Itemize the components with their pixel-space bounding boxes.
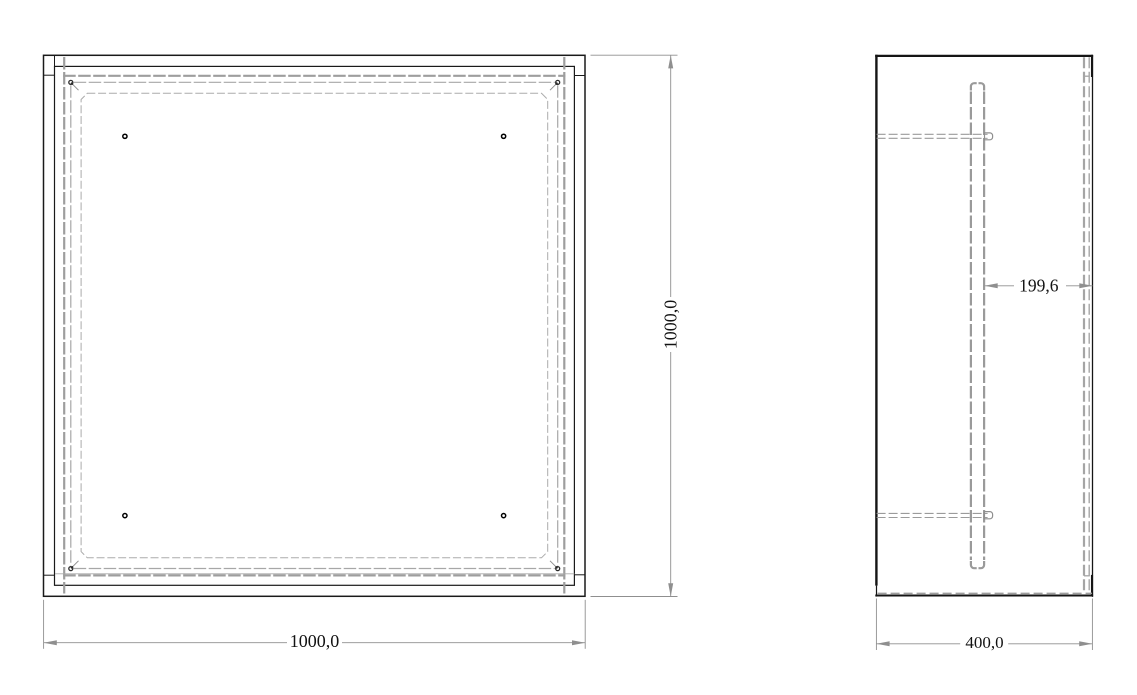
svg-text:400,0: 400,0 <box>965 633 1003 652</box>
svg-text:199,6: 199,6 <box>1019 275 1059 295</box>
svg-text:1000,0: 1000,0 <box>290 631 340 651</box>
svg-text:1000,0: 1000,0 <box>660 300 680 350</box>
